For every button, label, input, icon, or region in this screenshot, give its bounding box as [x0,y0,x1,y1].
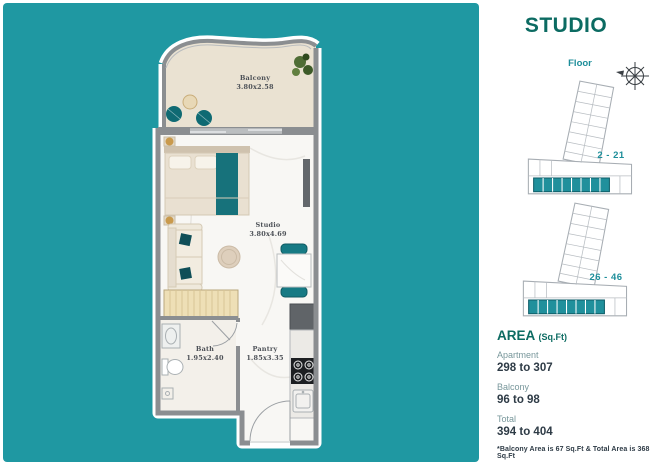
area-section: AREA (Sq.Ft) Apartment 298 to 307 Balcon… [497,328,657,460]
sofa [168,224,202,291]
area-row-value: 298 to 307 [497,361,657,375]
area-unit: (Sq.Ft) [539,332,568,342]
tv-panel [303,159,310,207]
area-note: *Balcony Area is 67 Sq.Ft & Total Area i… [497,446,657,460]
room-name: Pantry [230,345,300,354]
floorplan-svg [150,28,325,450]
area-row-balcony: Balcony 96 to 98 [497,382,657,407]
room-dims: 1.85x3.35 [230,354,300,363]
dining-chair [281,287,307,297]
room-name: Studio [223,221,313,230]
dining-table [277,254,311,287]
area-row-value: 96 to 98 [497,393,657,407]
sliding-window [158,127,316,135]
floor-plate-1-svg [525,78,637,198]
floor-range-label: 26 - 46 [576,272,636,283]
floor-plate-2: 26 - 46 [520,200,632,320]
area-row-label: Total [497,414,657,425]
room-label-studio: Studio 3.80x4.69 [223,221,313,238]
sofa-pillow [179,267,192,280]
room-label-balcony: Balcony 3.80x2.58 [210,74,300,91]
area-heading: AREA (Sq.Ft) [497,328,657,343]
area-heading-text: AREA [497,328,535,343]
room-dims: 3.80x2.58 [210,83,300,92]
wardrobe [164,290,238,318]
area-row-label: Balcony [497,382,657,393]
dining-chair [281,244,307,254]
floor-section-label: Floor [525,58,635,69]
area-row-label: Apartment [497,350,657,361]
floorplan-page: Balcony 3.80x2.58 Studio 3.80x4.69 Bath … [0,0,660,465]
room-name: Balcony [210,74,300,83]
floor-plate-2-svg [520,200,632,320]
area-row-total: Total 394 to 404 [497,414,657,439]
dining-set [277,244,311,297]
floorplan: Balcony 3.80x2.58 Studio 3.80x4.69 Bath … [150,28,325,450]
page-title: STUDIO [480,14,652,38]
area-row-apartment: Apartment 298 to 307 [497,350,657,375]
fridge [290,304,316,330]
floor-range-label: 2 - 21 [581,150,641,161]
room-dims: 3.80x4.69 [223,230,313,239]
info-panel: STUDIO Floor [480,0,660,465]
room-label-pantry: Pantry 1.85x3.35 [230,345,300,362]
sofa-pillow [179,233,192,246]
floor-plate-1: 2 - 21 [525,78,637,198]
area-row-value: 394 to 404 [497,425,657,439]
bed [164,146,250,215]
balcony-table [183,95,197,109]
plan-background-panel: Balcony 3.80x2.58 Studio 3.80x4.69 Bath … [3,3,479,462]
round-ottoman [218,246,240,268]
